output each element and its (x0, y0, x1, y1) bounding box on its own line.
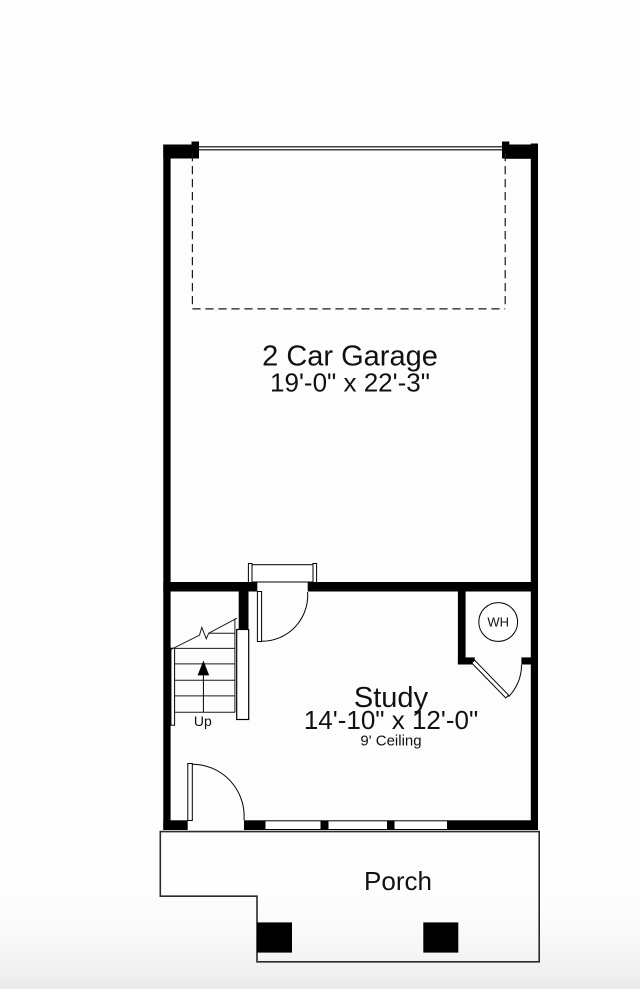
svg-text:19'-0" x 22'-3": 19'-0" x 22'-3" (270, 368, 430, 398)
svg-text:Porch: Porch (364, 866, 432, 896)
svg-text:WH: WH (487, 615, 509, 630)
svg-text:Up: Up (194, 713, 212, 729)
svg-text:9' Ceiling: 9' Ceiling (360, 732, 421, 749)
svg-text:14'-10" x 12'-0": 14'-10" x 12'-0" (304, 705, 478, 735)
